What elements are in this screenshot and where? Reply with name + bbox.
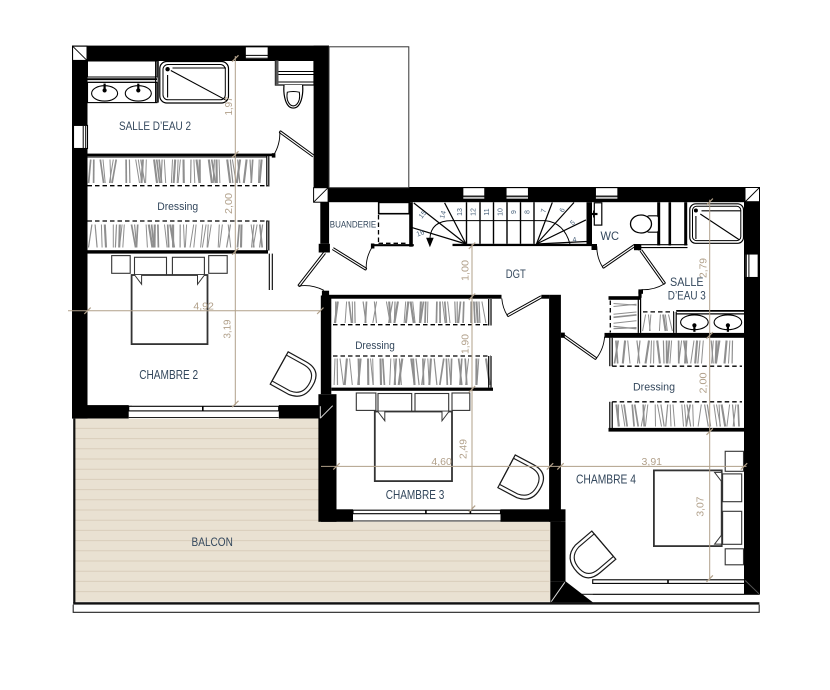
svg-text:4,92: 4,92 — [193, 301, 214, 312]
svg-text:2,00: 2,00 — [224, 193, 235, 214]
svg-text:13: 13 — [457, 208, 464, 216]
svg-text:12: 12 — [471, 208, 478, 216]
svg-text:SALLE D’EAU 2: SALLE D’EAU 2 — [119, 119, 191, 133]
svg-text:Dressing: Dressing — [633, 382, 675, 394]
svg-text:11: 11 — [484, 208, 491, 215]
svg-text:10: 10 — [498, 208, 505, 216]
svg-text:WC: WC — [601, 229, 620, 243]
svg-text:BALCON: BALCON — [192, 535, 233, 549]
svg-text:DGT: DGT — [506, 269, 526, 281]
svg-text:3,19: 3,19 — [223, 319, 234, 338]
svg-text:2,49: 2,49 — [458, 439, 469, 459]
svg-text:9: 9 — [511, 210, 518, 214]
svg-text:CHAMBRE 2: CHAMBRE 2 — [139, 368, 198, 382]
svg-text:CHAMBRE 3: CHAMBRE 3 — [386, 488, 445, 502]
svg-text:1,90: 1,90 — [461, 334, 472, 354]
svg-text:D’EAU 3: D’EAU 3 — [668, 291, 706, 303]
svg-text:1,00: 1,00 — [461, 260, 472, 281]
svg-text:2,79: 2,79 — [698, 258, 709, 278]
svg-text:4,60: 4,60 — [431, 457, 452, 468]
svg-text:Dressing: Dressing — [157, 201, 198, 213]
svg-text:3,07: 3,07 — [696, 496, 707, 516]
svg-text:8: 8 — [525, 210, 532, 214]
svg-text:3,91: 3,91 — [642, 457, 663, 468]
svg-text:BUANDERIE: BUANDERIE — [330, 220, 377, 231]
svg-text:2,00: 2,00 — [698, 372, 709, 393]
svg-text:Dressing: Dressing — [355, 340, 395, 352]
svg-text:1,97: 1,97 — [224, 96, 235, 115]
svg-text:CHAMBRE 4: CHAMBRE 4 — [576, 473, 636, 487]
